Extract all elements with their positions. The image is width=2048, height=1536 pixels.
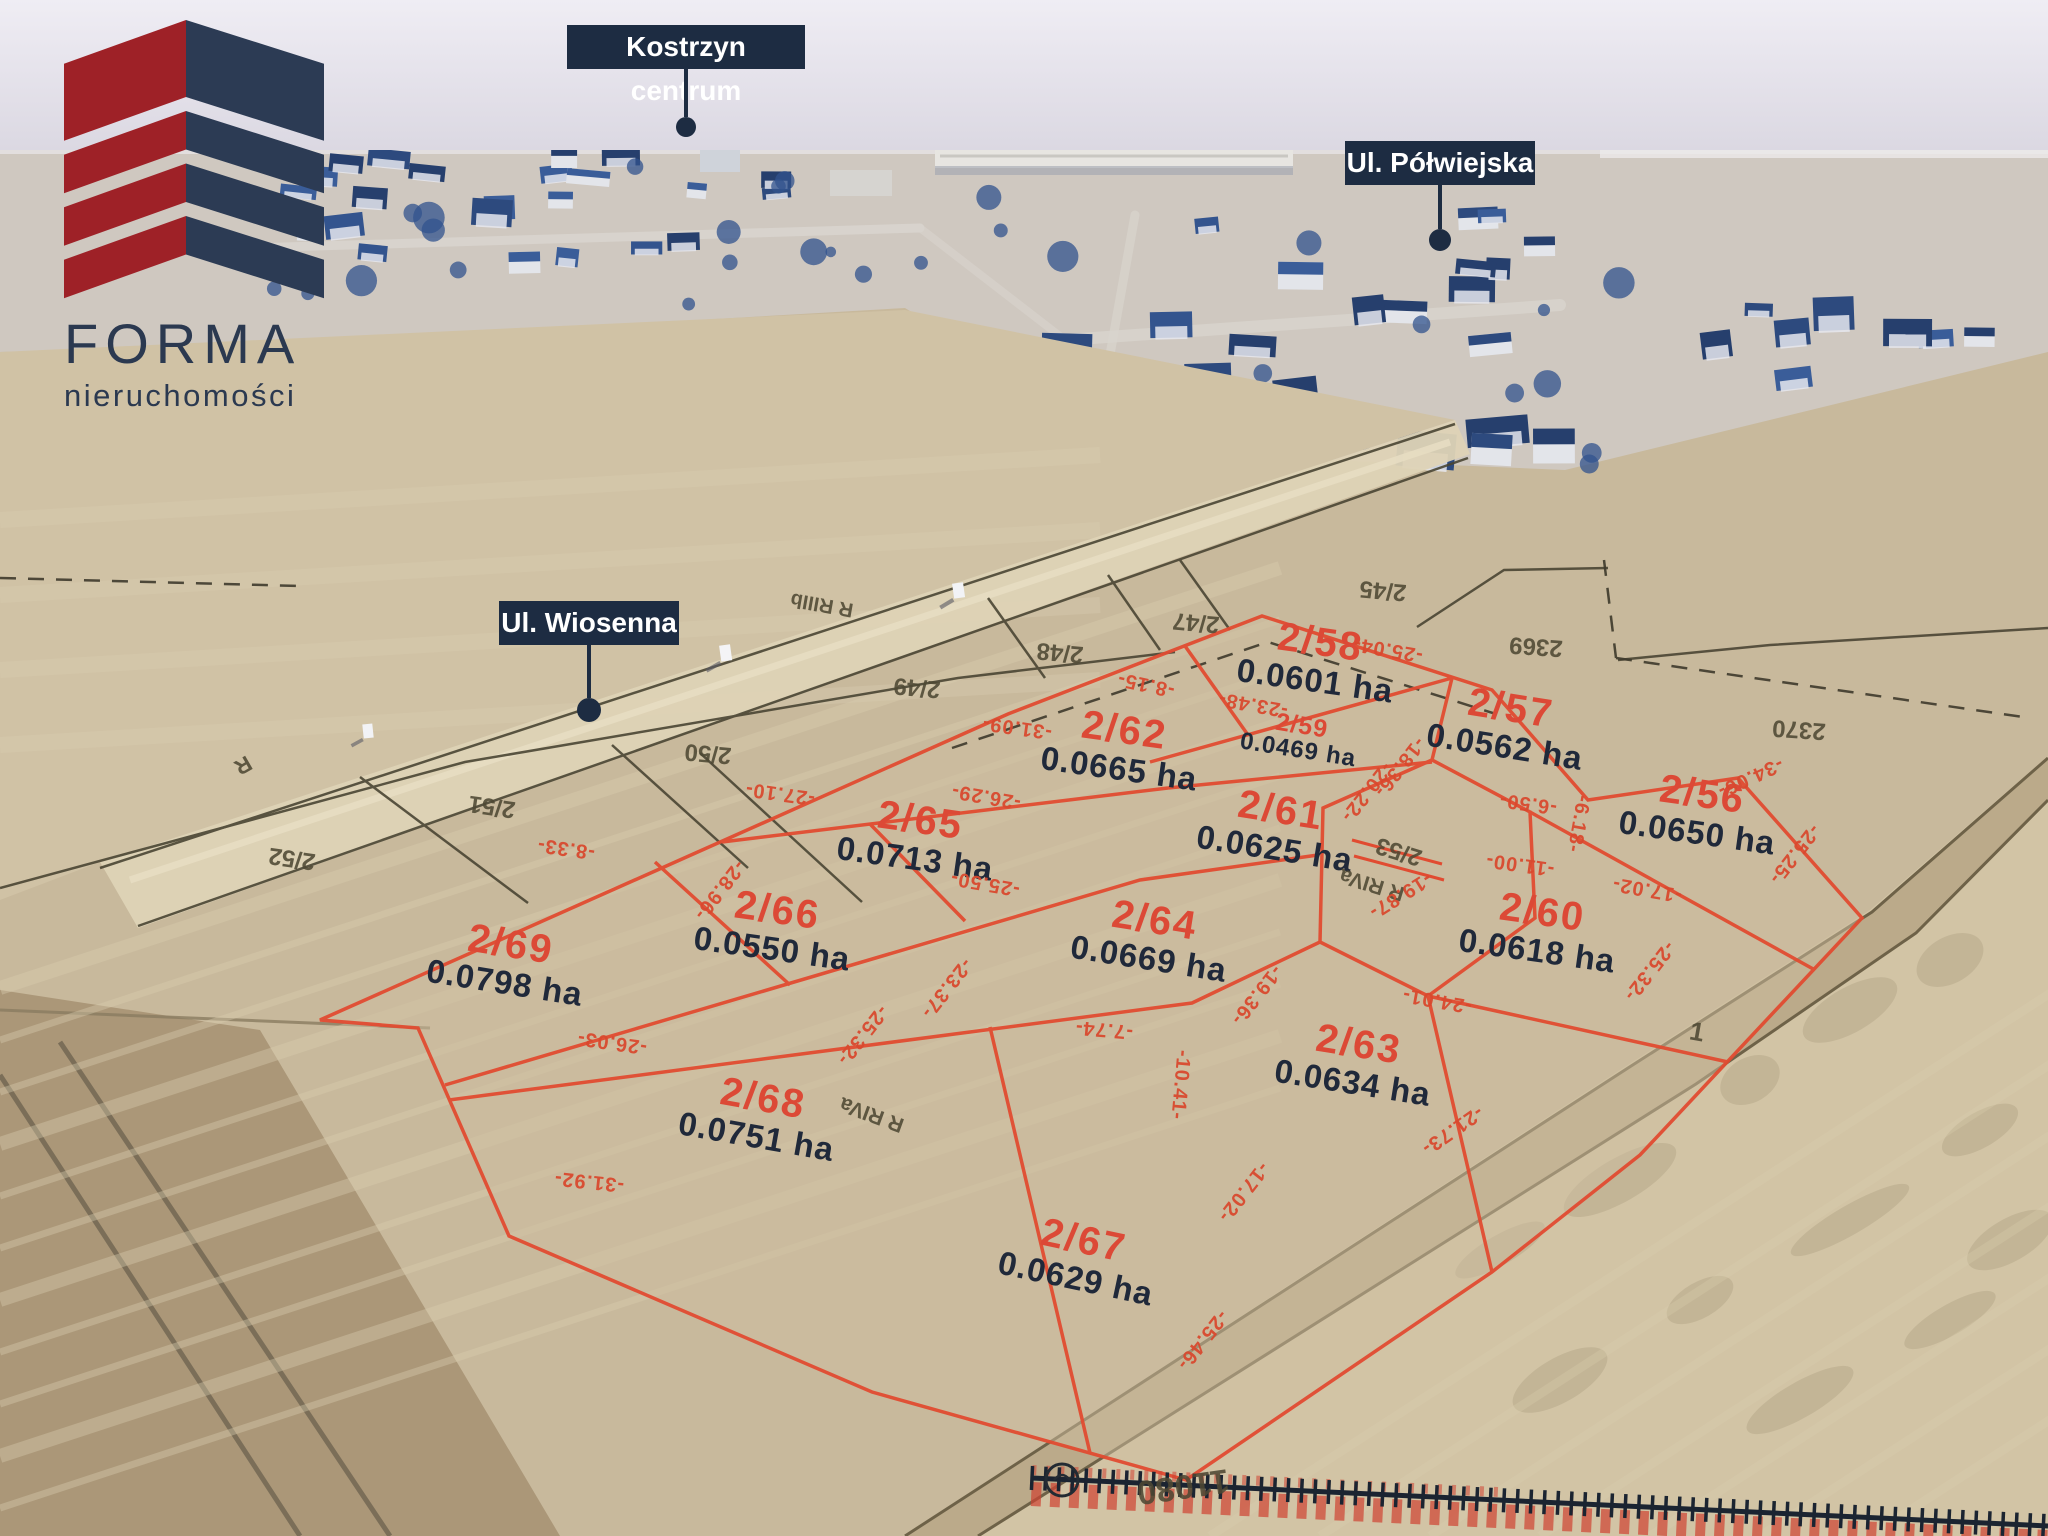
dimension-label: -31.09- [981, 711, 1054, 744]
plot-label-2/63: 2/630.0634 ha [1272, 1012, 1440, 1112]
parcel-number-label: 1 [1687, 1015, 1707, 1048]
plot-label-2/69: 2/690.0798 ha [424, 912, 592, 1012]
dimension-label: -27.10- [744, 777, 817, 810]
location-leader-dot [1429, 229, 1451, 251]
plot-label-2/68: 2/680.0751 ha [676, 1065, 844, 1167]
plot-label-2/61: 2/610.0625 ha [1194, 778, 1362, 878]
dimension-label: -25.46- [1171, 1305, 1232, 1375]
location-leader-dot [676, 117, 696, 137]
location-leader-line [684, 69, 688, 117]
parcel-number-label: R RIIIb [789, 587, 855, 621]
dimension-label: -6.50- [1498, 788, 1559, 819]
dimension-label: -8.33- [536, 833, 597, 864]
location-leader-dot [577, 698, 601, 722]
parcel-number-label: 2/48 [1036, 636, 1085, 668]
location-leader-line [587, 645, 591, 698]
plot-label-2/67: 2/670.0629 ha [995, 1204, 1165, 1311]
plot-label-2/64: 2/640.0669 ha [1068, 888, 1236, 988]
dimension-label: -10.41- [1165, 1049, 1194, 1121]
parcel-number-label: 2/47 [1172, 606, 1221, 638]
location-leader-line [1438, 185, 1442, 229]
parcel-number-label: R [230, 750, 257, 780]
parcel-number-label: 2/51 [467, 789, 517, 823]
location-label-ul-polwiejska: Ul. Półwiejska [1345, 141, 1535, 185]
location-label-kostrzyn-centrum: Kostrzyn centrum [567, 25, 805, 69]
dimension-label: -17.02- [1212, 1157, 1273, 1227]
dimension-label: -25.32- [831, 1000, 892, 1070]
parcel-number-label: 2/52 [267, 841, 317, 875]
dimension-label: -6.18- [1562, 793, 1595, 854]
location-label-ul-wiosenna: Ul. Wiosenna [499, 601, 679, 645]
plot-label-2/62: 2/620.0665 ha [1039, 699, 1206, 796]
dimension-label: -8.15- [1115, 667, 1177, 702]
dimension-label: -26.03- [576, 1026, 649, 1059]
parcel-number-label: 11080 [1134, 1460, 1231, 1512]
dimension-label: -23.37- [915, 953, 976, 1023]
aerial-plot-map: FORMA nieruchomości 2/580.0601 ha2/590.0… [0, 0, 2048, 1536]
dimension-label: -25.32- [1618, 936, 1679, 1006]
plot-label-2/57: 2/570.0562 ha [1424, 676, 1592, 776]
parcel-number-label: 2369 [1508, 630, 1563, 662]
dimension-label: -24.01- [1400, 983, 1473, 1018]
dimension-label: -31.92- [553, 1166, 625, 1196]
parcel-number-label: 2/49 [893, 671, 942, 703]
parcel-number-label: R RIVa [837, 1091, 908, 1136]
parcel-number-label: 2/53 [1373, 831, 1426, 871]
dimension-label: -11.00- [1484, 848, 1556, 880]
parcel-number-label: 2/45 [1359, 574, 1408, 606]
dimension-label: -19.36- [1225, 960, 1286, 1030]
plot-label-2/60: 2/600.0618 ha [1457, 881, 1624, 978]
dimension-label: -17.02- [1610, 872, 1683, 907]
parcel-number-label: 2/50 [684, 737, 733, 769]
parcel-number-label: 2370 [1771, 713, 1826, 745]
dimension-label: -25.50- [948, 866, 1021, 901]
dimension-label: -7.74- [1074, 1015, 1134, 1043]
annotation-layer: 2/580.0601 ha2/590.0469 ha2/570.0562 ha2… [0, 0, 2048, 1536]
